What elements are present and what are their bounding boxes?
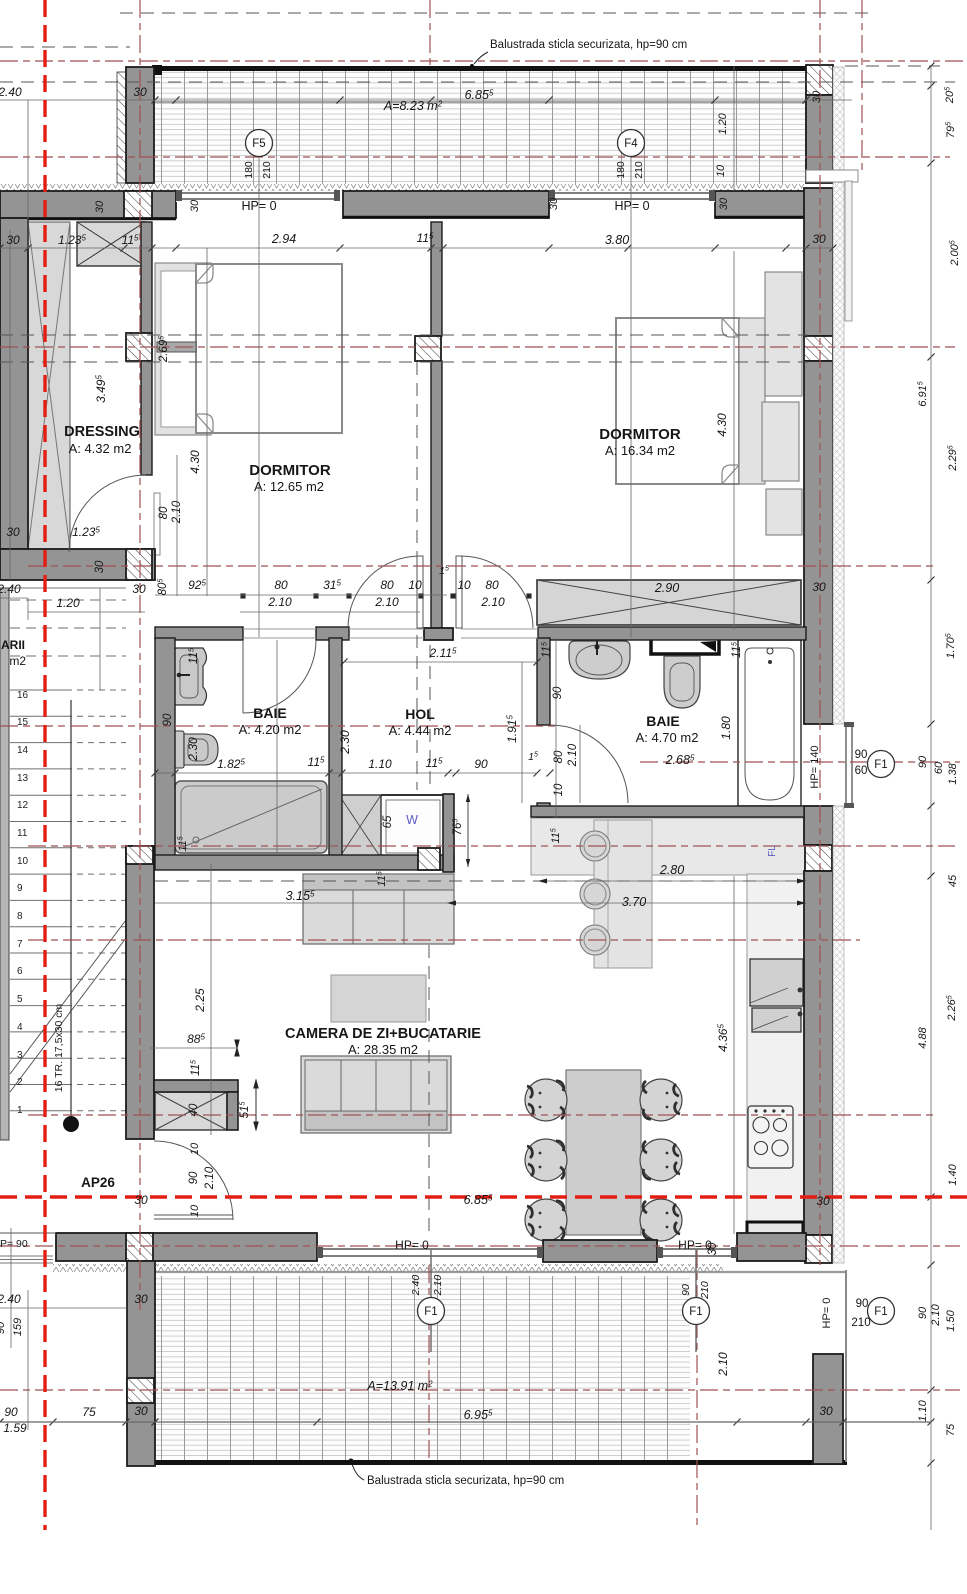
svg-text:90: 90: [474, 757, 488, 771]
svg-text:3.80: 3.80: [605, 233, 629, 247]
svg-text:DRESSING: DRESSING: [64, 424, 140, 440]
svg-text:HP= 0: HP= 0: [241, 199, 276, 213]
svg-text:2.10: 2.10: [374, 595, 399, 609]
svg-text:90: 90: [856, 1298, 869, 1310]
svg-text:A=8.23 m2: A=8.23 m2: [383, 99, 443, 113]
svg-text:60: 60: [855, 765, 868, 777]
svg-text:80: 80: [553, 750, 565, 763]
svg-text:40: 40: [188, 1103, 200, 1116]
svg-text:P= 90: P= 90: [0, 1238, 28, 1250]
svg-text:HP= 0: HP= 0: [395, 1238, 429, 1252]
svg-text:210: 210: [851, 1317, 870, 1329]
svg-text:2.10: 2.10: [432, 1275, 444, 1297]
svg-text:W: W: [406, 813, 418, 827]
svg-text:8: 8: [17, 911, 23, 922]
svg-text:90: 90: [917, 755, 929, 768]
svg-text:30: 30: [707, 1242, 719, 1255]
svg-text:A: 4.32 m2: A: 4.32 m2: [69, 441, 132, 456]
svg-text:210: 210: [261, 161, 273, 179]
svg-text:90: 90: [4, 1405, 18, 1419]
svg-text:159: 159: [12, 1318, 24, 1336]
svg-text:F1: F1: [689, 1306, 702, 1318]
svg-text:2.40: 2.40: [410, 1275, 422, 1297]
svg-text:2.695: 2.695: [158, 336, 170, 363]
svg-text:2.94: 2.94: [271, 232, 296, 246]
svg-text:2.10: 2.10: [204, 1166, 216, 1190]
svg-text:2.40: 2.40: [0, 85, 22, 99]
svg-text:60: 60: [933, 761, 945, 774]
svg-text:HP= 140: HP= 140: [809, 745, 821, 788]
svg-text:80: 80: [274, 578, 288, 592]
svg-text:2.10: 2.10: [267, 595, 292, 609]
svg-text:F1: F1: [874, 759, 887, 771]
svg-text:30: 30: [189, 199, 201, 212]
svg-text:10: 10: [553, 783, 565, 796]
svg-text:A: 16.34 m2: A: 16.34 m2: [605, 443, 675, 458]
svg-text:2.40: 2.40: [0, 582, 21, 596]
svg-text:2.80: 2.80: [659, 863, 684, 877]
svg-text:HOL: HOL: [405, 706, 435, 722]
svg-text:4.30: 4.30: [715, 413, 729, 437]
svg-text:30: 30: [548, 197, 560, 210]
svg-text:BAIE: BAIE: [253, 705, 286, 721]
svg-text:13: 13: [17, 773, 29, 784]
svg-text:1: 1: [17, 1105, 23, 1116]
svg-text:2.90: 2.90: [654, 581, 679, 595]
svg-text:11: 11: [17, 828, 28, 839]
svg-text:4.88: 4.88: [917, 1026, 929, 1048]
svg-text:AP26: AP26: [81, 1175, 115, 1190]
svg-text:10: 10: [189, 1142, 201, 1155]
svg-text:2.25: 2.25: [193, 988, 207, 1013]
svg-text:90: 90: [680, 1284, 692, 1296]
svg-text:30: 30: [812, 232, 826, 246]
svg-text:1.10: 1.10: [917, 1399, 929, 1421]
svg-text:4: 4: [17, 1022, 23, 1033]
svg-text:30: 30: [94, 200, 106, 213]
svg-text:m2: m2: [9, 654, 26, 668]
svg-text:BAIE: BAIE: [646, 713, 679, 729]
svg-text:10: 10: [457, 578, 471, 592]
svg-text:16 TR. 17,5x30 cm: 16 TR. 17,5x30 cm: [53, 1003, 65, 1092]
svg-text:6: 6: [17, 966, 23, 977]
svg-text:1.20: 1.20: [56, 596, 80, 610]
svg-text:210: 210: [633, 161, 645, 179]
svg-text:90: 90: [855, 749, 868, 761]
svg-text:2.10: 2.10: [716, 1352, 730, 1377]
svg-text:1.50: 1.50: [945, 1309, 957, 1331]
svg-text:5: 5: [17, 994, 23, 1005]
svg-text:30: 30: [132, 582, 146, 596]
svg-text:HP= 0: HP= 0: [821, 1298, 833, 1329]
svg-text:2.30: 2.30: [338, 730, 352, 755]
svg-text:A: 4.20 m2: A: 4.20 m2: [239, 722, 302, 737]
svg-text:F1: F1: [874, 1306, 887, 1318]
svg-text:10: 10: [715, 164, 727, 177]
svg-text:10: 10: [17, 856, 29, 867]
svg-text:F4: F4: [624, 138, 638, 150]
svg-text:1.10: 1.10: [368, 757, 392, 771]
svg-text:4.30: 4.30: [188, 450, 202, 474]
svg-text:180: 180: [243, 161, 255, 179]
svg-text:HP= 0: HP= 0: [614, 199, 649, 213]
svg-text:75: 75: [82, 1405, 96, 1419]
svg-text:10: 10: [189, 1204, 201, 1217]
svg-text:210: 210: [699, 1281, 711, 1300]
svg-text:16: 16: [17, 690, 29, 701]
svg-text:80: 80: [158, 506, 170, 519]
svg-text:2.30: 2.30: [186, 737, 200, 762]
svg-text:A: 4.44 m2: A: 4.44 m2: [389, 723, 452, 738]
svg-text:90: 90: [162, 713, 174, 726]
svg-text:80: 80: [485, 578, 499, 592]
svg-text:2.10: 2.10: [171, 500, 183, 524]
svg-text:2.10: 2.10: [480, 595, 505, 609]
svg-text:1.80: 1.80: [719, 716, 733, 740]
svg-text:1.40: 1.40: [947, 1163, 959, 1185]
svg-text:90: 90: [0, 1321, 7, 1334]
svg-text:A: 28.35 m2: A: 28.35 m2: [348, 1042, 418, 1057]
svg-text:90: 90: [188, 1171, 200, 1184]
svg-text:ARII: ARII: [1, 638, 25, 652]
svg-text:12: 12: [17, 800, 29, 811]
svg-text:30: 30: [718, 197, 730, 210]
svg-text:30: 30: [816, 1194, 830, 1208]
svg-text:65: 65: [382, 815, 394, 828]
svg-text:30: 30: [812, 580, 826, 594]
svg-text:DORMITOR: DORMITOR: [599, 426, 681, 443]
svg-text:1.59: 1.59: [3, 1421, 27, 1435]
svg-text:30: 30: [819, 1404, 833, 1418]
svg-text:A=13.91 m2: A=13.91 m2: [366, 1379, 433, 1393]
svg-text:A: 4.70 m2: A: 4.70 m2: [636, 730, 699, 745]
svg-text:CAMERA DE ZI+BUCATARIE: CAMERA DE ZI+BUCATARIE: [285, 1026, 481, 1042]
svg-text:30: 30: [94, 560, 106, 573]
svg-text:80: 80: [380, 578, 394, 592]
svg-text:3.70: 3.70: [622, 895, 646, 909]
svg-text:FL: FL: [767, 845, 778, 857]
svg-text:30: 30: [134, 1404, 148, 1418]
svg-text:75: 75: [945, 1423, 957, 1436]
svg-text:90: 90: [917, 1306, 929, 1319]
svg-text:1.20: 1.20: [717, 112, 729, 134]
svg-text:DORMITOR: DORMITOR: [249, 462, 331, 479]
svg-text:2.10: 2.10: [930, 1303, 942, 1326]
svg-text:180: 180: [615, 161, 627, 179]
svg-text:Balustrada sticla securizata,: Balustrada sticla securizata, hp=90 cm: [367, 1475, 564, 1487]
svg-text:30: 30: [6, 233, 20, 247]
svg-text:2.10: 2.10: [567, 743, 579, 767]
svg-text:3: 3: [17, 1050, 23, 1061]
svg-text:A: 12.65 m2: A: 12.65 m2: [254, 479, 324, 494]
svg-text:2: 2: [17, 1077, 23, 1088]
svg-text:30: 30: [811, 90, 823, 103]
svg-text:30: 30: [6, 525, 20, 539]
svg-text:2.40: 2.40: [0, 1292, 21, 1306]
svg-text:F1: F1: [424, 1306, 437, 1318]
svg-text:45: 45: [947, 874, 959, 887]
svg-text:1.38: 1.38: [947, 762, 959, 784]
svg-text:30: 30: [134, 1292, 148, 1306]
svg-text:30: 30: [133, 85, 147, 99]
svg-text:7: 7: [17, 939, 23, 950]
svg-text:9: 9: [17, 883, 23, 894]
svg-text:F5: F5: [252, 138, 265, 150]
svg-text:10: 10: [408, 578, 422, 592]
svg-text:30: 30: [134, 1193, 148, 1207]
svg-text:14: 14: [17, 745, 29, 756]
svg-text:Balustrada sticla securizata,: Balustrada sticla securizata, hp=90 cm: [490, 39, 687, 51]
svg-text:90: 90: [552, 686, 564, 699]
